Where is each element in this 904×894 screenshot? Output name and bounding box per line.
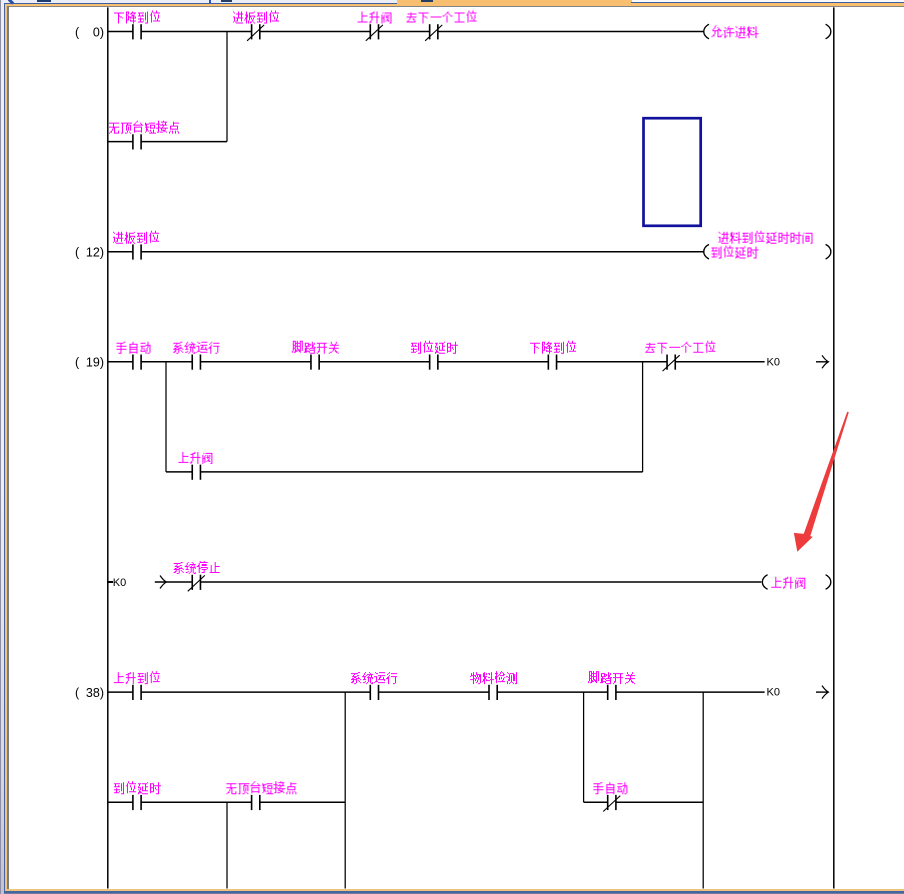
svg-text:(: ( <box>75 356 80 370</box>
svg-text:19): 19) <box>86 356 104 370</box>
svg-text:38): 38) <box>86 686 104 700</box>
svg-text:(: ( <box>75 246 80 260</box>
svg-text:(: ( <box>75 686 80 700</box>
svg-text:K0: K0 <box>767 356 780 368</box>
svg-text:(: ( <box>75 25 80 39</box>
svg-text:K0: K0 <box>767 687 780 699</box>
svg-text:K0: K0 <box>113 577 126 589</box>
svg-text:0): 0) <box>93 25 104 39</box>
svg-text:12): 12) <box>86 246 104 260</box>
